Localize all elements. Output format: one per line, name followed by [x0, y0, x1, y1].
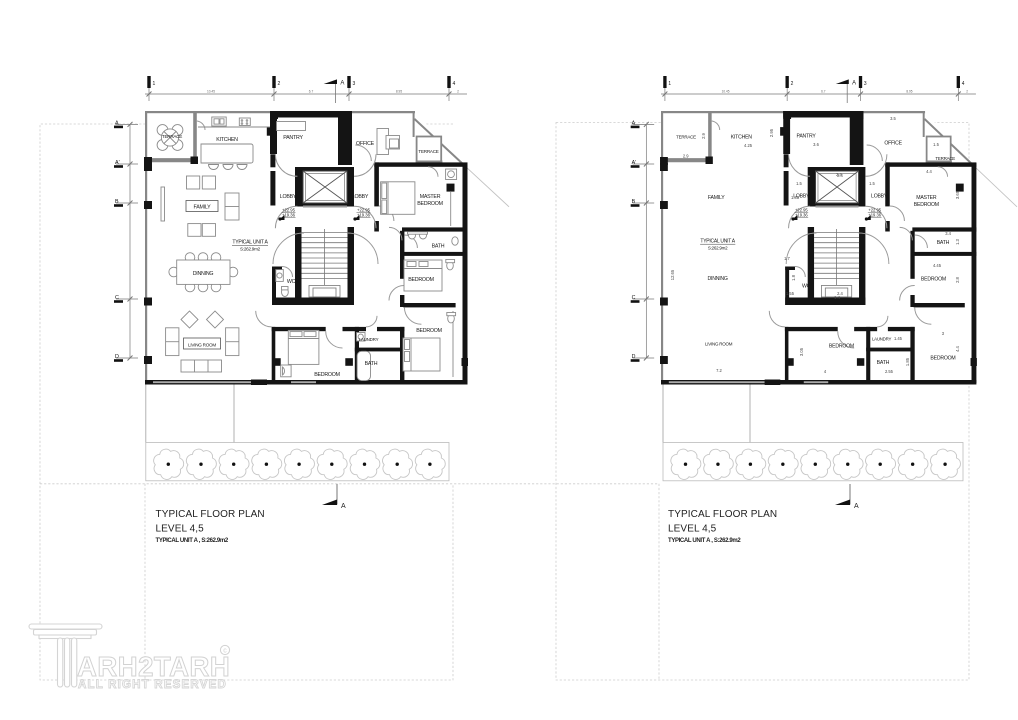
svg-text:OFFICE: OFFICE	[884, 141, 902, 147]
svg-text:B: B	[115, 199, 119, 205]
svg-text:1.35: 1.35	[791, 195, 800, 200]
svg-text:LEVEL 4,5: LEVEL 4,5	[668, 524, 717, 535]
svg-text:4.25: 4.25	[744, 143, 753, 148]
svg-text:A: A	[340, 81, 344, 87]
svg-text:A': A'	[632, 160, 637, 166]
svg-text:FAMILY: FAMILY	[194, 205, 212, 211]
svg-text:7.2: 7.2	[716, 368, 722, 373]
svg-text:2.95: 2.95	[769, 128, 774, 137]
svg-text:10.45: 10.45	[207, 89, 215, 93]
svg-text:2: 2	[457, 89, 459, 93]
svg-text:4: 4	[453, 81, 456, 87]
svg-text:3.5: 3.5	[890, 116, 896, 121]
svg-text:TYPICAL UNIT A , S:262.9m2: TYPICAL UNIT A , S:262.9m2	[668, 538, 741, 544]
svg-text:3.4: 3.4	[945, 231, 951, 236]
svg-text:BEDROOM: BEDROOM	[829, 344, 854, 350]
svg-text:LOBBY: LOBBY	[352, 194, 369, 200]
svg-text:TERRACE: TERRACE	[162, 134, 182, 139]
svg-text:1.4: 1.4	[834, 295, 840, 300]
svg-text:TERRACE: TERRACE	[676, 134, 696, 139]
svg-text:BEDROOM: BEDROOM	[408, 277, 434, 283]
svg-text:D: D	[632, 354, 636, 360]
svg-text:DINNING: DINNING	[708, 276, 728, 282]
svg-text:1.85: 1.85	[905, 357, 910, 366]
svg-text:2.9: 2.9	[701, 132, 706, 139]
svg-text:2: 2	[966, 89, 968, 93]
svg-text:2.55: 2.55	[885, 369, 894, 374]
svg-text:4.45: 4.45	[933, 263, 942, 268]
svg-text:BEDROOM: BEDROOM	[416, 328, 442, 334]
svg-text:6.7: 6.7	[309, 89, 314, 93]
svg-text:2.8: 2.8	[955, 276, 960, 283]
svg-text:PANTRY: PANTRY	[283, 135, 303, 141]
svg-text:8.95: 8.95	[906, 89, 912, 93]
svg-text:3: 3	[353, 81, 356, 87]
svg-text:TYPICAL FLOOR PLAN: TYPICAL FLOOR PLAN	[156, 509, 265, 520]
svg-text:LAUNDRY: LAUNDRY	[872, 337, 891, 342]
svg-text:BATH: BATH	[877, 360, 890, 366]
svg-text:10.45: 10.45	[722, 89, 730, 93]
svg-text:2.4: 2.4	[837, 173, 843, 178]
svg-text:A': A'	[115, 160, 120, 166]
svg-text:S:262.9m2: S:262.9m2	[708, 245, 728, 250]
svg-text:1.5: 1.5	[933, 142, 939, 147]
svg-text:D: D	[115, 354, 119, 360]
svg-text:FAMILY: FAMILY	[708, 195, 725, 201]
svg-text:6.7: 6.7	[821, 89, 826, 93]
svg-text:1.55: 1.55	[786, 291, 795, 296]
svg-text:TERRACE: TERRACE	[935, 156, 955, 161]
svg-text:MASTER: MASTER	[420, 194, 441, 200]
svg-text:LAUNDRY: LAUNDRY	[359, 337, 379, 342]
svg-text:BATH: BATH	[365, 361, 378, 367]
svg-text:TYPICAL UNIT A: TYPICAL UNIT A	[700, 238, 735, 244]
svg-text:4.4: 4.4	[955, 345, 960, 352]
svg-text:B: B	[632, 199, 636, 205]
svg-text:TYPICAL FLOOR PLAN: TYPICAL FLOOR PLAN	[668, 509, 777, 520]
svg-text:DINNING: DINNING	[193, 271, 214, 277]
svg-text:TYPICAL UNIT A: TYPICAL UNIT A	[232, 240, 268, 246]
svg-text:S:262.9m2: S:262.9m2	[240, 247, 261, 252]
svg-text:1: 1	[153, 81, 156, 87]
svg-text:A: A	[852, 80, 856, 86]
svg-text:BEDROOM: BEDROOM	[914, 202, 939, 208]
svg-text:3: 3	[864, 81, 867, 87]
svg-text:BEDROOM: BEDROOM	[314, 372, 340, 378]
svg-text:c: c	[223, 648, 227, 655]
svg-text:A: A	[632, 120, 636, 126]
svg-text:1: 1	[668, 81, 671, 87]
svg-text:C: C	[115, 295, 119, 301]
svg-text:MASTER: MASTER	[916, 195, 937, 201]
svg-text:A: A	[854, 503, 859, 510]
svg-text:A: A	[115, 120, 119, 126]
svg-text:3.65: 3.65	[955, 190, 960, 199]
svg-text:3.05: 3.05	[799, 347, 804, 356]
svg-text:1.3: 1.3	[955, 238, 960, 245]
svg-text:BEDROOM: BEDROOM	[417, 201, 443, 207]
svg-text:WC: WC	[802, 284, 811, 290]
svg-text:KITCHEN: KITCHEN	[731, 134, 752, 140]
svg-text:PANTRY: PANTRY	[797, 133, 817, 139]
svg-text:1.8: 1.8	[791, 274, 796, 281]
svg-text:2: 2	[278, 81, 281, 87]
svg-text:ARH2TARH: ARH2TARH	[77, 651, 230, 682]
svg-text:1.5: 1.5	[796, 181, 802, 186]
svg-text:12.65: 12.65	[670, 269, 675, 280]
svg-text:TERRACE: TERRACE	[418, 149, 438, 154]
svg-text:LEVEL 4,5: LEVEL 4,5	[156, 524, 205, 535]
svg-text:C: C	[632, 295, 636, 301]
svg-text:BEDROOM: BEDROOM	[921, 277, 946, 283]
svg-text:LIVING ROOM: LIVING ROOM	[188, 343, 216, 348]
svg-text:LOBBY: LOBBY	[871, 193, 888, 199]
svg-text:OFFICE: OFFICE	[356, 141, 375, 147]
svg-text:BEDROOM: BEDROOM	[930, 356, 955, 362]
svg-text:8.95: 8.95	[396, 89, 402, 93]
svg-text:ALL RIGHT RESERVED: ALL RIGHT RESERVED	[78, 679, 227, 691]
svg-text:4.4: 4.4	[926, 169, 932, 174]
svg-text:1.5: 1.5	[869, 181, 875, 186]
svg-text:2.9: 2.9	[683, 153, 689, 158]
svg-text:LIVING ROOM: LIVING ROOM	[705, 341, 733, 346]
svg-text:1.45: 1.45	[894, 336, 903, 341]
svg-text:BATH: BATH	[937, 240, 950, 246]
svg-text:3.6: 3.6	[813, 142, 819, 147]
svg-text:KITCHEN: KITCHEN	[216, 137, 238, 143]
svg-text:BATH: BATH	[432, 244, 445, 250]
svg-text:WC: WC	[287, 279, 296, 285]
svg-text:4: 4	[962, 81, 965, 87]
svg-text:TYPICAL UNIT A , S:262.9m2: TYPICAL UNIT A , S:262.9m2	[156, 538, 229, 544]
svg-text:2: 2	[791, 81, 794, 87]
svg-text:1.7: 1.7	[784, 256, 790, 261]
svg-text:LOBBY: LOBBY	[280, 194, 297, 200]
svg-text:A: A	[341, 503, 346, 510]
